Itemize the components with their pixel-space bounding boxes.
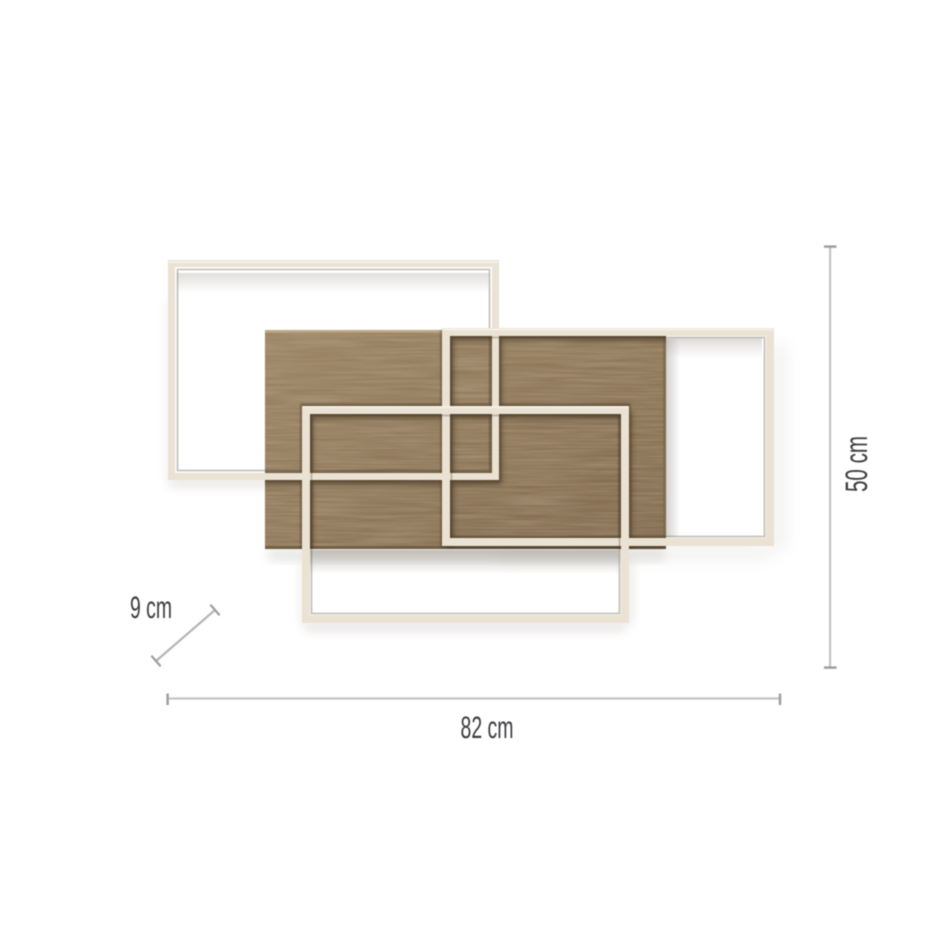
- svg-text:82 cm: 82 cm: [461, 710, 514, 745]
- svg-text:9 cm: 9 cm: [130, 590, 172, 625]
- svg-text:50 cm: 50 cm: [839, 436, 874, 492]
